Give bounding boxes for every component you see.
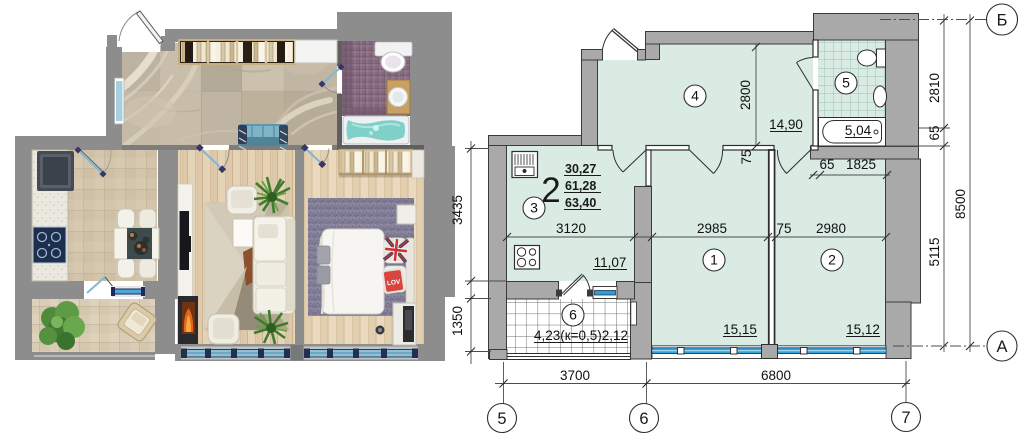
svg-text:8500: 8500 — [953, 189, 968, 219]
svg-text:5115: 5115 — [927, 237, 942, 266]
svg-text:61,28: 61,28 — [565, 179, 596, 193]
svg-text:3: 3 — [530, 200, 538, 216]
svg-text:1825: 1825 — [846, 157, 876, 172]
svg-text:3700: 3700 — [560, 368, 590, 383]
svg-text:65: 65 — [819, 157, 834, 172]
svg-text:2810: 2810 — [927, 73, 942, 103]
svg-text:3435: 3435 — [450, 195, 465, 225]
svg-text:4,23(к=0,5)2,12: 4,23(к=0,5)2,12 — [534, 328, 628, 343]
svg-text:1: 1 — [710, 252, 718, 268]
svg-text:2985: 2985 — [697, 221, 727, 236]
svg-text:5: 5 — [842, 75, 850, 91]
svg-text:65: 65 — [927, 125, 942, 140]
svg-text:5,04: 5,04 — [845, 123, 872, 138]
svg-text:Б: Б — [997, 12, 1008, 30]
svg-text:1350: 1350 — [450, 306, 465, 336]
svg-text:А: А — [996, 338, 1007, 356]
svg-text:63,40: 63,40 — [565, 196, 596, 210]
svg-text:6: 6 — [639, 410, 648, 428]
svg-text:15,12: 15,12 — [846, 322, 880, 337]
svg-text:14,90: 14,90 — [769, 117, 803, 132]
svg-text:75: 75 — [739, 149, 754, 164]
svg-text:7: 7 — [901, 409, 910, 427]
svg-text:75: 75 — [776, 221, 791, 236]
svg-text:4: 4 — [691, 88, 699, 104]
svg-text:6800: 6800 — [761, 368, 791, 383]
svg-text:30,27: 30,27 — [565, 162, 596, 176]
svg-text:5: 5 — [497, 410, 506, 428]
svg-text:2800: 2800 — [738, 80, 753, 110]
svg-text:15,15: 15,15 — [723, 322, 757, 337]
svg-text:2: 2 — [828, 252, 836, 268]
svg-text:3120: 3120 — [556, 221, 586, 236]
svg-text:6: 6 — [569, 307, 577, 323]
svg-text:2980: 2980 — [816, 221, 846, 236]
svg-text:11,07: 11,07 — [594, 255, 627, 270]
